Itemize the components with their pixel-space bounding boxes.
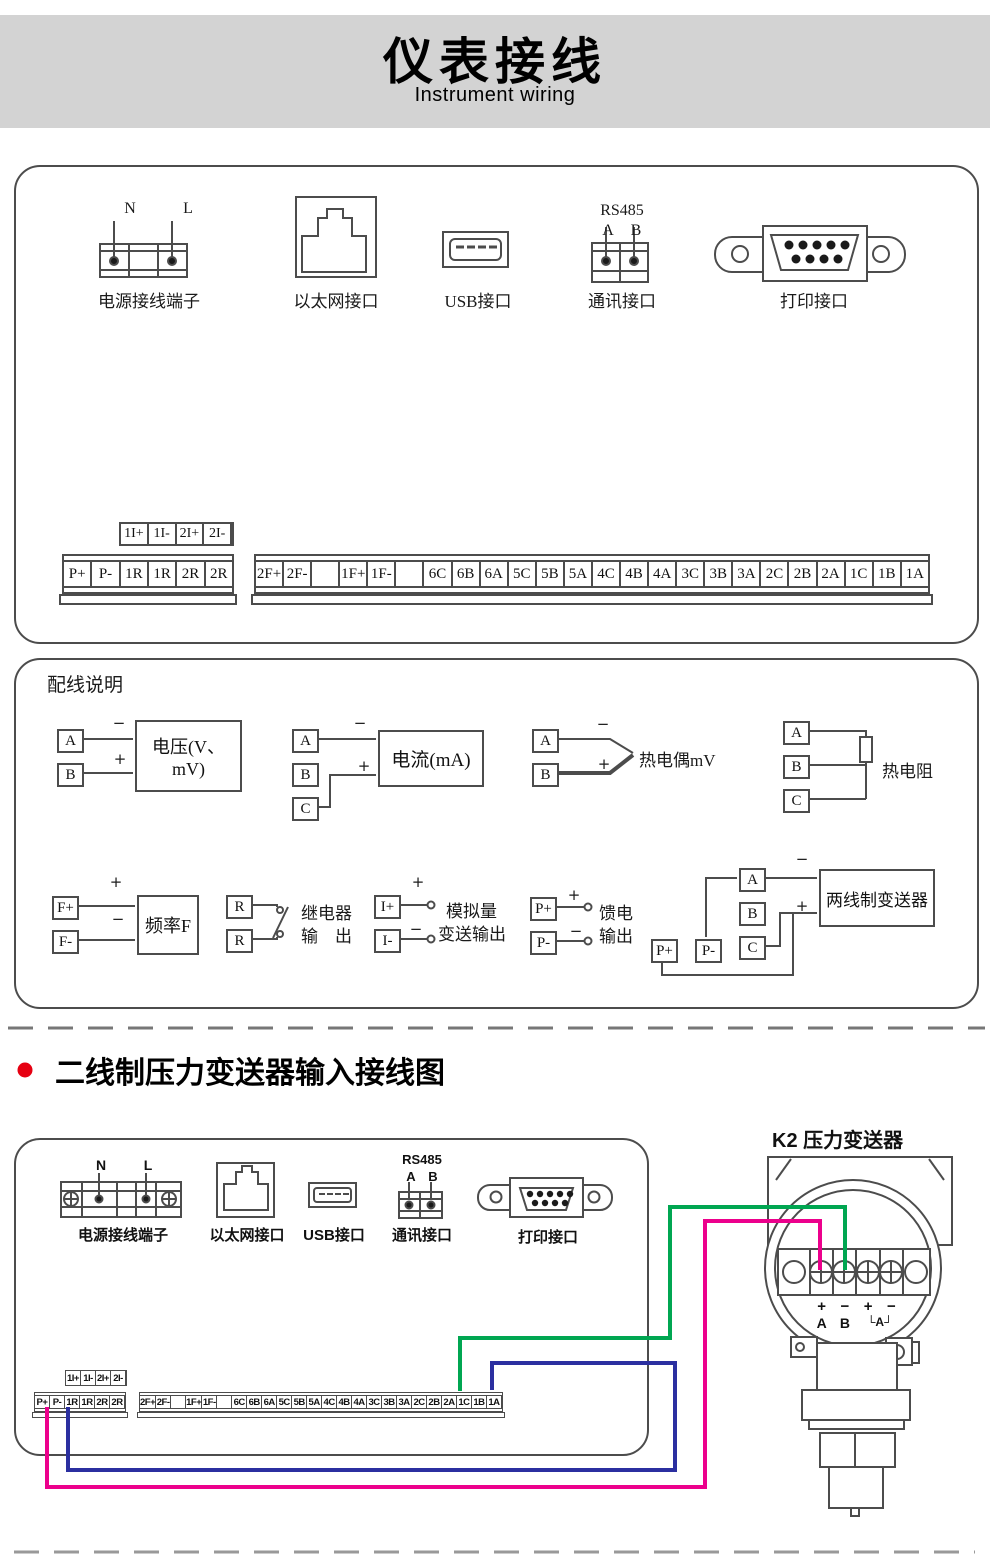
strip-rail bbox=[137, 1412, 505, 1418]
terminal-cell: 1A bbox=[487, 1396, 502, 1408]
rs485-bus-label: RS485 bbox=[587, 202, 657, 220]
terminal-cell: 2I+ bbox=[177, 524, 205, 544]
terminal-box: B bbox=[292, 763, 319, 787]
terminal-cell: 1F- bbox=[368, 562, 396, 586]
terminal-cell: 2F- bbox=[156, 1396, 171, 1408]
relay-output-label-line1: 继电器 bbox=[301, 899, 352, 924]
plus-sign: + bbox=[792, 897, 812, 915]
strip-rail bbox=[32, 1412, 128, 1418]
terminal-box: B bbox=[783, 755, 810, 779]
terminal-cell: P+ bbox=[64, 562, 92, 586]
terminal-cell: 3B bbox=[705, 562, 733, 586]
terminal-cell: 1A bbox=[902, 562, 928, 586]
screw-terminals bbox=[810, 1261, 902, 1283]
wiring-explanation-box: 配线说明 AB 电压(V、mV) − + ABC 电流(mA) − + AB −… bbox=[14, 658, 979, 1009]
terminal-cell: 2R bbox=[177, 562, 205, 586]
terminal-cell: 5A bbox=[307, 1396, 322, 1408]
terminal-cell: 4C bbox=[322, 1396, 337, 1408]
terminal-cell: 1F- bbox=[202, 1396, 217, 1408]
feed-output-label-line1: 馈电 bbox=[599, 899, 633, 924]
terminal-cell: 1F+ bbox=[186, 1396, 202, 1408]
wiring-explanation-title: 配线说明 bbox=[47, 670, 123, 697]
terminal-box: C bbox=[739, 936, 766, 960]
strip-rail bbox=[251, 594, 933, 605]
twowire-terminals: ABC bbox=[739, 868, 766, 960]
ethernet-port-label: 以太网接口 bbox=[197, 1224, 297, 1245]
strip-band bbox=[35, 1408, 125, 1411]
terminal-cell: 1I- bbox=[81, 1371, 96, 1385]
terminal-cell: 2I- bbox=[204, 524, 232, 544]
terminal-cell: 4A bbox=[352, 1396, 367, 1408]
relay-output-label-line2: 输 出 bbox=[301, 922, 352, 947]
voltage-terminals: AB bbox=[57, 729, 84, 787]
section-title: 二线制压力变送器输入接线图 bbox=[55, 1048, 445, 1092]
terminal-cell: 2F+ bbox=[140, 1396, 156, 1408]
terminal-box: A bbox=[292, 729, 319, 753]
analog-output-label-line1: 模拟量 bbox=[446, 897, 497, 922]
terminal-cell: 6B bbox=[453, 562, 481, 586]
minus-sign: − bbox=[109, 714, 129, 732]
pin-sign: + bbox=[810, 1298, 833, 1315]
terminal-cell: 6B bbox=[247, 1396, 262, 1408]
ethernet-port-label: 以太网接口 bbox=[286, 287, 386, 312]
twowire-device-box: 两线制变送器 bbox=[819, 869, 935, 927]
terminal-cell: 1F+ bbox=[340, 562, 368, 586]
terminal-cell: 6C bbox=[232, 1396, 247, 1408]
terminal-cell: 3C bbox=[367, 1396, 382, 1408]
plus-sign: + bbox=[354, 757, 374, 775]
terminal-box: I- bbox=[374, 929, 401, 953]
power-pin-l: L bbox=[174, 200, 202, 218]
minus-sign: − bbox=[350, 714, 370, 732]
terminal-box: P- bbox=[530, 931, 557, 955]
transmitter-title: K2 压力变送器 bbox=[772, 1124, 903, 1153]
pin-name-b: B bbox=[833, 1315, 856, 1331]
terminal-box: B bbox=[739, 902, 766, 926]
terminal-cell: 2R bbox=[110, 1396, 125, 1408]
power-pin-n: N bbox=[116, 200, 144, 218]
plus-sign: + bbox=[110, 750, 130, 768]
pressure-wiring-box: N L RS485 A B 电源接线端子 以太网接口 USB接口 通讯接口 打印… bbox=[14, 1138, 649, 1456]
terminal-cell: 4C bbox=[593, 562, 621, 586]
section-bullet bbox=[18, 1063, 33, 1078]
pin-sign: + bbox=[857, 1298, 880, 1315]
analog-output-terminals: I+I- bbox=[374, 895, 401, 953]
twowire-p-plus-terminal: P+ bbox=[651, 939, 678, 963]
terminal-cell bbox=[312, 562, 340, 586]
terminal-cell: 1I- bbox=[149, 524, 177, 544]
aux-terminal-strip: 1I+1I-2I+2I- bbox=[65, 1370, 127, 1386]
printer-port-label: 打印接口 bbox=[498, 1226, 598, 1247]
terminal-cell: 2F- bbox=[284, 562, 312, 586]
frequency-device-box: 频率F bbox=[137, 895, 199, 955]
current-terminals: ABC bbox=[292, 729, 319, 821]
thermocouple-label: 热电偶mV bbox=[639, 746, 716, 771]
aux-terminal-strip: 1I+1I-2I+2I- bbox=[119, 522, 234, 546]
strip-rail bbox=[59, 594, 237, 605]
terminal-box: A bbox=[57, 729, 84, 753]
terminal-cell: 1B bbox=[874, 562, 902, 586]
rs485-bus-label: RS485 bbox=[392, 1152, 452, 1167]
frequency-terminals: F+F- bbox=[52, 896, 79, 954]
right-terminal-strip: 2F+2F-1F+1F-6C6B6A5C5B5A4C4B4A3C3B3A2C2B… bbox=[139, 1392, 503, 1412]
terminal-cell: 3A bbox=[733, 562, 761, 586]
terminal-cell: 3A bbox=[397, 1396, 412, 1408]
page-banner: 仪表接线 Instrument wiring bbox=[0, 15, 990, 128]
terminal-cell: 1C bbox=[846, 562, 874, 586]
analog-output-label-line2: 变送输出 bbox=[438, 920, 506, 945]
terminal-cell: P+ bbox=[35, 1396, 50, 1408]
plus-sign: + bbox=[408, 873, 428, 891]
terminal-cell: 1R bbox=[80, 1396, 95, 1408]
terminal-cell: 2I+ bbox=[96, 1371, 111, 1385]
current-device-box: 电流(mA) bbox=[378, 730, 484, 787]
connector-overview-box: N L RS485 A B 电源接线端子 以太网接口 USB接口 通讯接口 打印… bbox=[14, 165, 979, 644]
strip-band bbox=[140, 1408, 502, 1411]
feed-output-terminals: P+P- bbox=[530, 897, 557, 955]
strip-band bbox=[64, 586, 232, 592]
left-terminal-strip: P+P-1R1R2R2R bbox=[34, 1392, 126, 1412]
terminal-cell: 1C bbox=[457, 1396, 472, 1408]
terminal-cell: 1I+ bbox=[121, 524, 149, 544]
minus-sign: − bbox=[406, 920, 426, 938]
terminal-cell bbox=[217, 1396, 232, 1408]
terminal-cell: P- bbox=[50, 1396, 65, 1408]
minus-sign: − bbox=[108, 910, 128, 928]
terminal-cell: 1R bbox=[65, 1396, 80, 1408]
terminal-cell: 5B bbox=[292, 1396, 307, 1408]
strip-band bbox=[256, 586, 928, 592]
voltage-device-box: 电压(V、mV) bbox=[135, 720, 242, 792]
right-terminal-strip: 2F+2F-1F+1F-6C6B6A5C5B5A4C4B4A3C3B3A2C2B… bbox=[254, 554, 930, 594]
terminal-cell: 1R bbox=[149, 562, 177, 586]
terminal-cell: 4B bbox=[337, 1396, 352, 1408]
terminal-box: A bbox=[739, 868, 766, 892]
terminal-cell: 2C bbox=[412, 1396, 427, 1408]
terminal-box: F+ bbox=[52, 896, 79, 920]
rs485-pin-a: A bbox=[594, 222, 622, 240]
terminal-cell: 1B bbox=[472, 1396, 487, 1408]
terminal-cell: 6C bbox=[424, 562, 452, 586]
terminal-cell: 2R bbox=[95, 1396, 110, 1408]
rtd-terminals: ABC bbox=[783, 721, 810, 813]
power-pin-n: N bbox=[87, 1157, 115, 1173]
minus-sign: − bbox=[566, 922, 586, 940]
terminal-cell: 1R bbox=[121, 562, 149, 586]
thermocouple-terminals: AB bbox=[532, 729, 559, 787]
plus-sign: + bbox=[564, 886, 584, 904]
pressure-transmitter-drawing bbox=[765, 1157, 952, 1516]
left-terminal-strip: P+P-1R1R2R2R bbox=[62, 554, 234, 594]
minus-sign: − bbox=[593, 715, 613, 733]
pin-name-a: A bbox=[810, 1315, 833, 1331]
terminal-cell: 5C bbox=[509, 562, 537, 586]
terminal-cell: 5C bbox=[277, 1396, 292, 1408]
terminal-cell: 2F+ bbox=[256, 562, 284, 586]
page-subtitle: Instrument wiring bbox=[415, 84, 576, 107]
rs485-pin-b: B bbox=[622, 222, 650, 240]
pin-name-loop-a: └A┘ bbox=[857, 1315, 904, 1331]
printer-port-label: 打印接口 bbox=[769, 287, 859, 312]
terminal-cell: 6A bbox=[481, 562, 509, 586]
power-terminal-label: 电源接线端子 bbox=[56, 1224, 190, 1245]
terminal-cell: 2C bbox=[761, 562, 789, 586]
pin-sign: − bbox=[880, 1298, 903, 1315]
plus-sign: + bbox=[106, 873, 126, 891]
terminal-box: B bbox=[57, 763, 84, 787]
terminal-cell: 2B bbox=[427, 1396, 442, 1408]
power-terminal-label: 电源接线端子 bbox=[89, 287, 209, 312]
terminal-cell: 3C bbox=[677, 562, 705, 586]
terminal-box: C bbox=[783, 789, 810, 813]
terminal-box: A bbox=[532, 729, 559, 753]
transmitter-pin-names: A B └A┘ bbox=[810, 1315, 903, 1331]
terminal-cell: 2A bbox=[442, 1396, 457, 1408]
relay-terminals: RR bbox=[226, 895, 253, 953]
comm-port-label: 通讯接口 bbox=[372, 1224, 472, 1245]
terminal-cell: 2I- bbox=[111, 1371, 126, 1385]
terminal-cell: 6A bbox=[262, 1396, 277, 1408]
terminal-box: A bbox=[783, 721, 810, 745]
terminal-cell: 3B bbox=[382, 1396, 397, 1408]
feed-output-label-line2: 输出 bbox=[599, 922, 633, 947]
terminal-cell: 2B bbox=[789, 562, 817, 586]
rtd-label: 热电阻 bbox=[882, 757, 933, 782]
terminal-cell: 5A bbox=[565, 562, 593, 586]
twowire-p-minus-terminal: P- bbox=[695, 939, 722, 963]
power-pin-l: L bbox=[134, 1157, 162, 1173]
minus-sign: − bbox=[792, 850, 812, 868]
terminal-box: B bbox=[532, 763, 559, 787]
plus-sign: + bbox=[594, 755, 614, 773]
pin-sign: − bbox=[833, 1298, 856, 1315]
terminal-box: R bbox=[226, 895, 253, 919]
terminal-box: F- bbox=[52, 930, 79, 954]
terminal-box: P+ bbox=[530, 897, 557, 921]
terminal-cell: P- bbox=[92, 562, 120, 586]
terminal-cell bbox=[171, 1396, 186, 1408]
terminal-cell: 5B bbox=[537, 562, 565, 586]
comm-port-label: 通讯接口 bbox=[577, 287, 667, 312]
terminal-cell: 2A bbox=[818, 562, 846, 586]
terminal-box: I+ bbox=[374, 895, 401, 919]
terminal-box: C bbox=[292, 797, 319, 821]
terminal-box: R bbox=[226, 929, 253, 953]
usb-port-label: USB接口 bbox=[294, 1224, 374, 1245]
rs485-pin-b: B bbox=[419, 1169, 447, 1184]
terminal-cell bbox=[396, 562, 424, 586]
terminal-cell: 4B bbox=[621, 562, 649, 586]
instrument-wiring-page: 仪表接线 Instrument wiring N L RS485 A B 电源接… bbox=[0, 0, 990, 1564]
page-title: 仪表接线 bbox=[383, 36, 607, 89]
terminal-cell: 4A bbox=[649, 562, 677, 586]
terminal-cell: 1I+ bbox=[66, 1371, 81, 1385]
transmitter-pin-signs: + − + − bbox=[810, 1298, 903, 1315]
usb-port-label: USB接口 bbox=[433, 287, 523, 312]
terminal-cell: 2R bbox=[206, 562, 232, 586]
